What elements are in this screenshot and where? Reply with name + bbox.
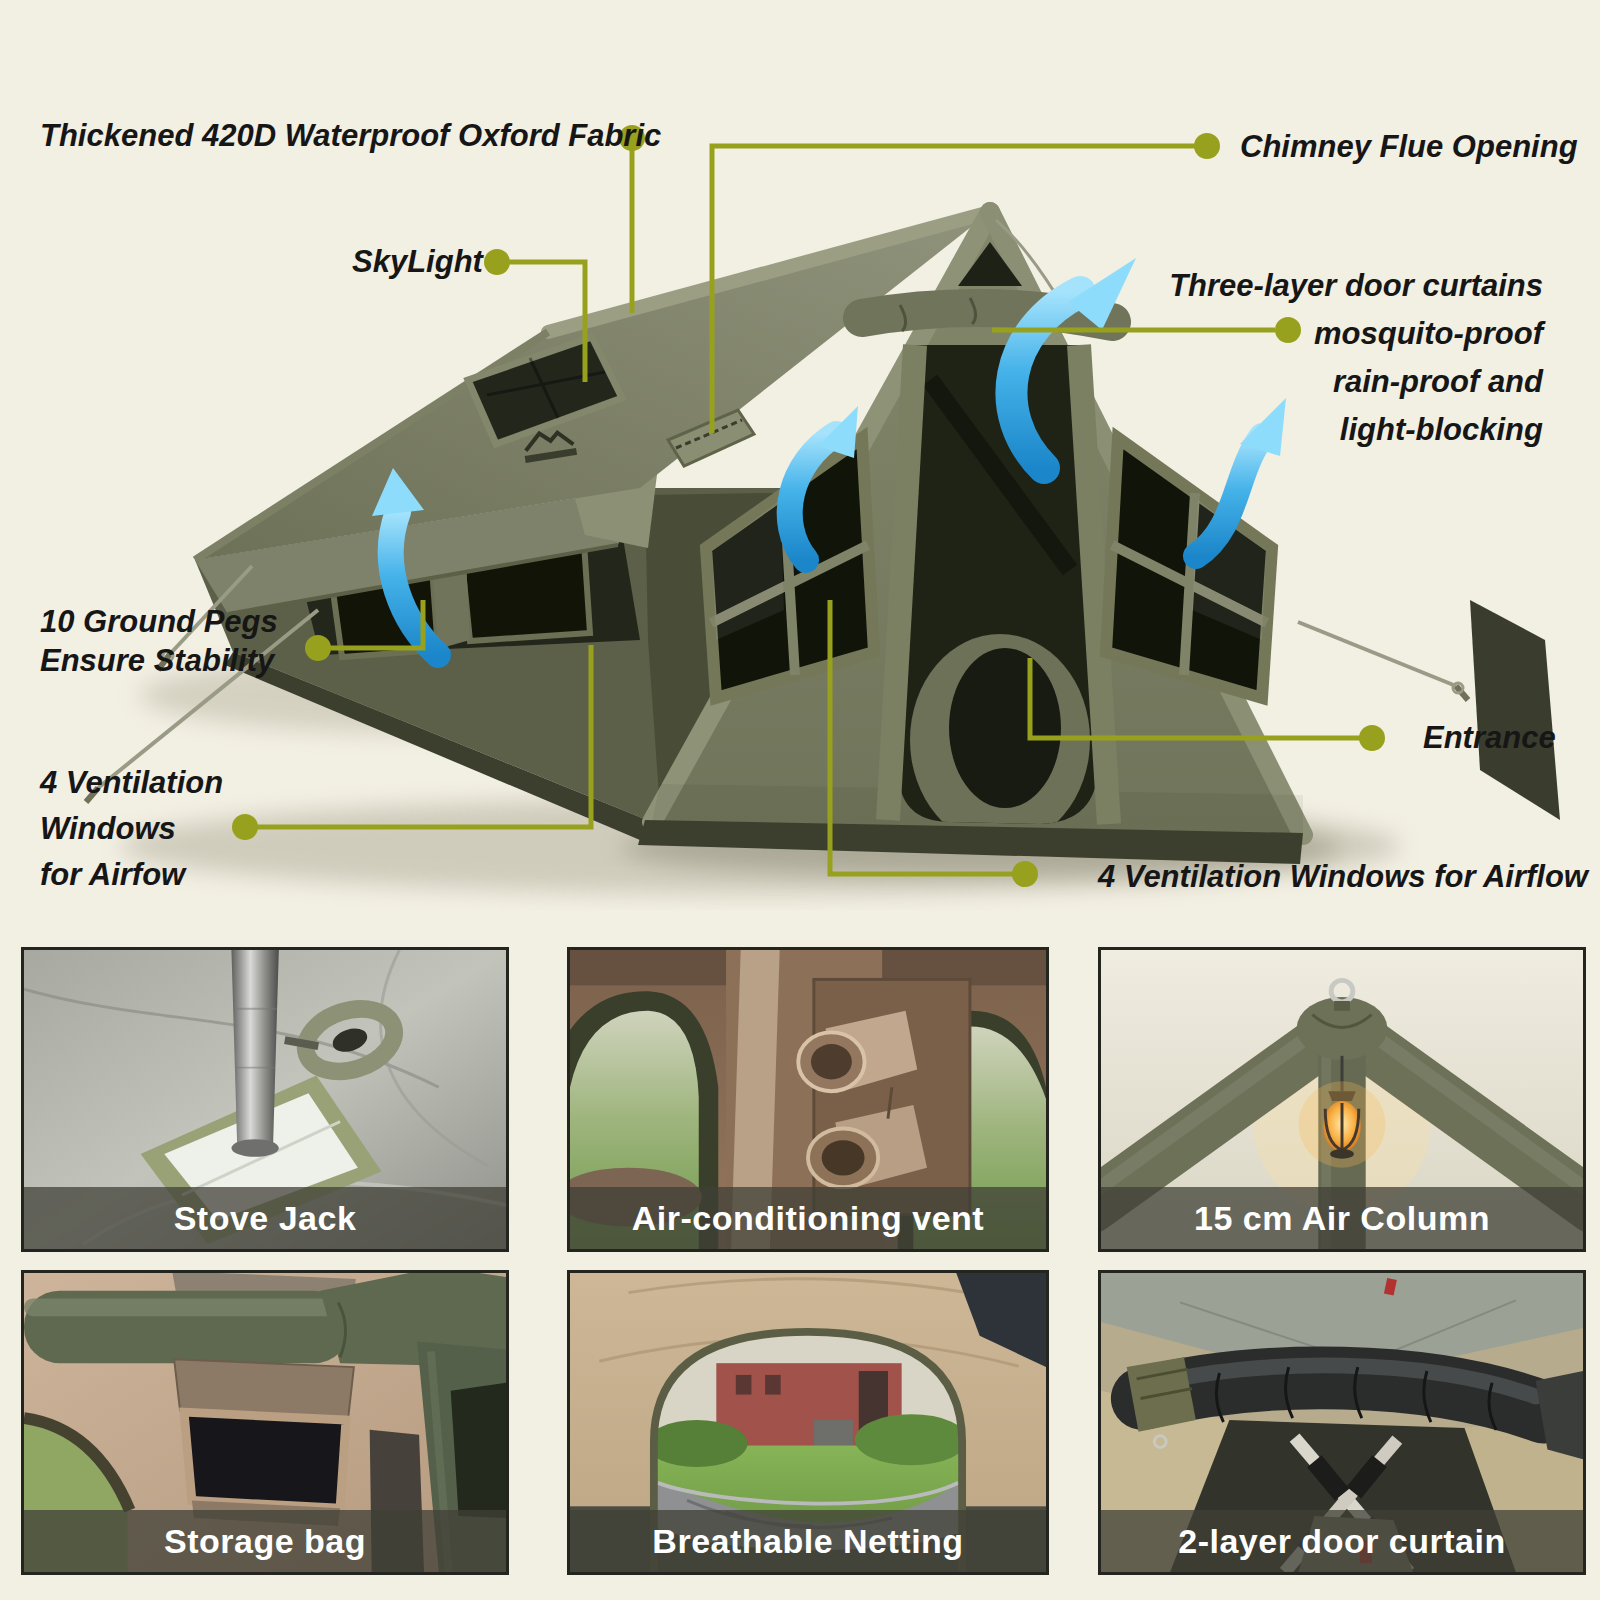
label-line: Ensure Stability bbox=[40, 641, 278, 680]
label-line: rain-proof and bbox=[1169, 358, 1543, 406]
label-line: Windows bbox=[40, 806, 223, 852]
feature-card-door-curtain: 2-layer door curtain bbox=[1098, 1270, 1586, 1575]
label-fabric: Thickened 420D Waterproof Oxford Fabric bbox=[40, 120, 661, 151]
feature-caption: Storage bag bbox=[24, 1510, 506, 1572]
callout-dot bbox=[484, 249, 510, 275]
label-line: Three-layer door curtains bbox=[1169, 262, 1543, 310]
feature-card-breathable-netting: Breathable Netting bbox=[567, 1270, 1049, 1575]
feature-caption: 2-layer door curtain bbox=[1101, 1510, 1583, 1572]
label-front-vents: 4 Ventilation Windows for Airflow bbox=[1098, 861, 1588, 892]
product-infographic: Thickened 420D Waterproof Oxford Fabric … bbox=[0, 0, 1600, 1600]
storage-pocket bbox=[174, 1359, 354, 1526]
feature-card-stove-jack: Stove Jack bbox=[21, 947, 509, 1252]
callout-dot bbox=[1194, 133, 1220, 159]
label-line: light-blocking bbox=[1169, 406, 1543, 454]
label-skylight: SkyLight bbox=[352, 246, 483, 277]
callout-dot bbox=[1359, 725, 1385, 751]
callout-dot bbox=[305, 635, 331, 661]
feature-card-air-column: 15 cm Air Column bbox=[1098, 947, 1586, 1252]
label-side-vents: 4 Ventilation Windows for Airfow bbox=[40, 760, 223, 898]
label-chimney: Chimney Flue Opening bbox=[1240, 131, 1578, 162]
label-line: 10 Ground Pegs bbox=[40, 602, 278, 641]
label-ground-pegs: 10 Ground Pegs Ensure Stability bbox=[40, 602, 278, 680]
side-flap bbox=[1470, 600, 1560, 820]
feature-card-storage-bag: Storage bag bbox=[21, 1270, 509, 1575]
label-door-curtains: Three-layer door curtains mosquito-proof… bbox=[1169, 262, 1543, 454]
label-line: mosquito-proof bbox=[1169, 310, 1543, 358]
feature-card-ac-vent: Air-conditioning vent bbox=[567, 947, 1049, 1252]
label-line: for Airfow bbox=[40, 852, 223, 898]
feature-caption: Stove Jack bbox=[24, 1187, 506, 1249]
callout-dot bbox=[232, 814, 258, 840]
label-line: 4 Ventilation bbox=[40, 760, 223, 806]
callout-dot bbox=[1012, 861, 1038, 887]
label-entrance: Entrance bbox=[1423, 722, 1556, 753]
feature-caption: Air-conditioning vent bbox=[570, 1187, 1046, 1249]
feature-caption: 15 cm Air Column bbox=[1101, 1187, 1583, 1249]
stove-pipe bbox=[231, 950, 278, 1151]
feature-caption: Breathable Netting bbox=[570, 1510, 1046, 1572]
